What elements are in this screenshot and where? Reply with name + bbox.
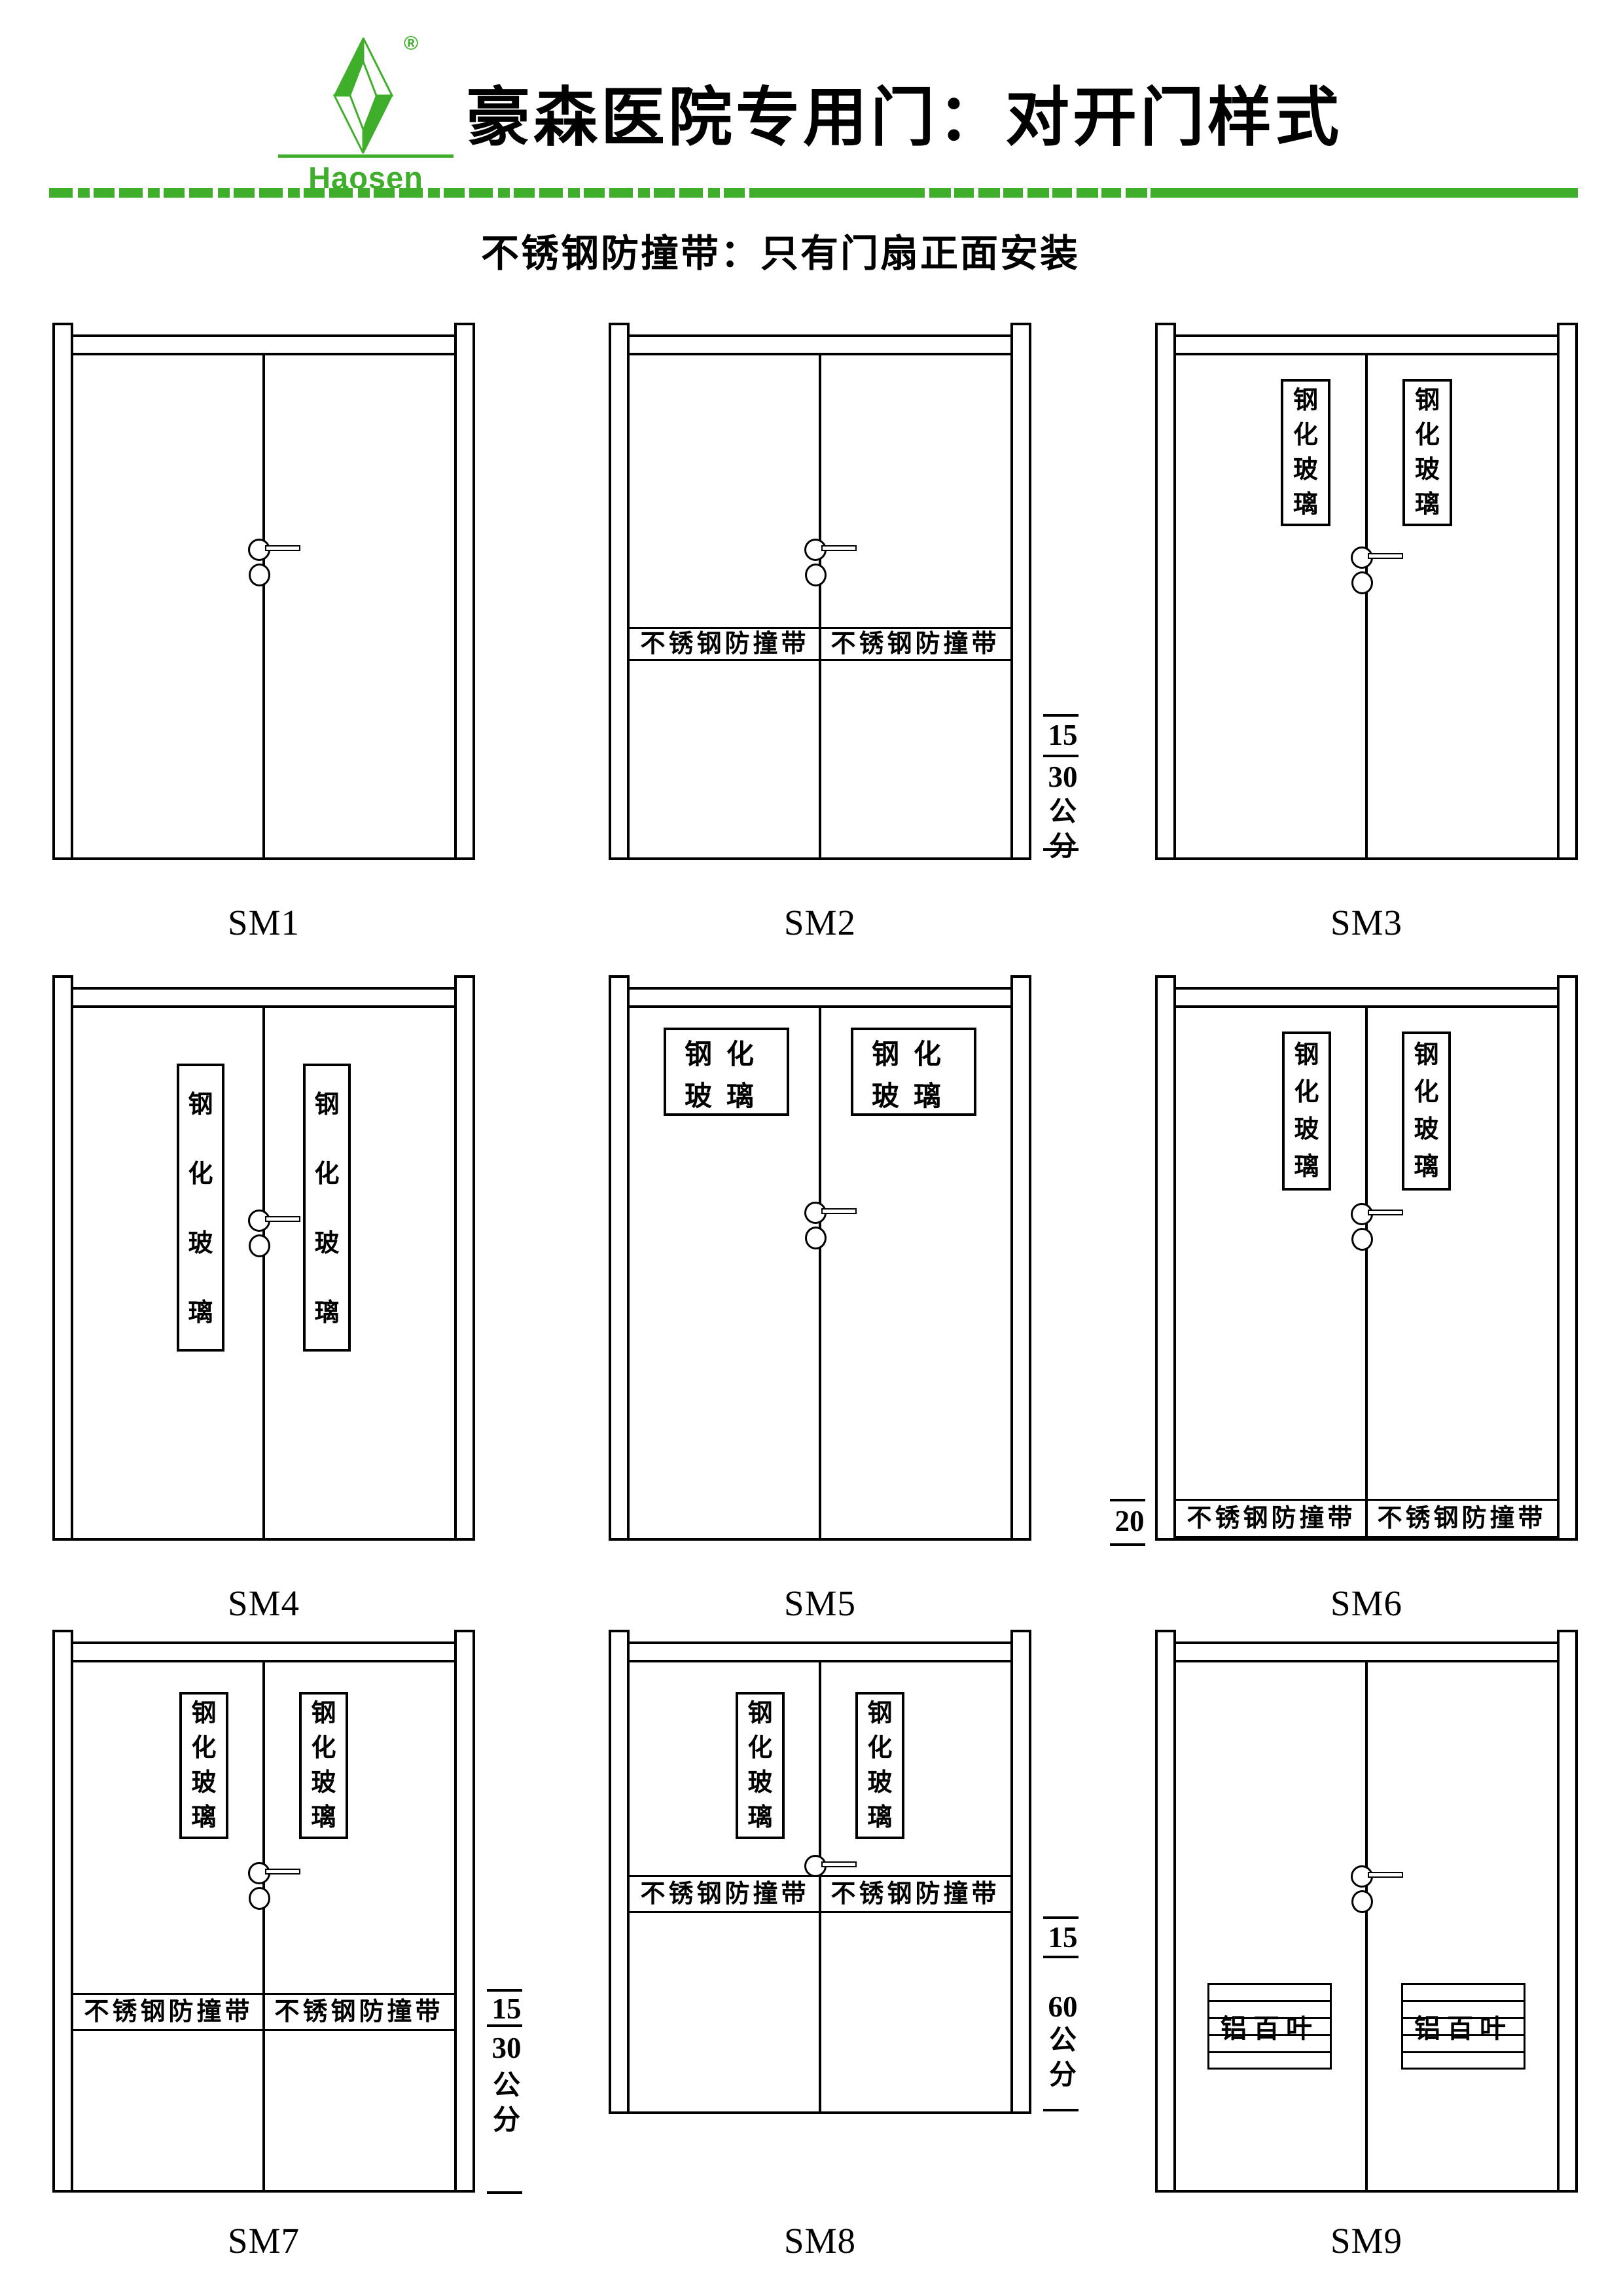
dim-value-strip-height: 20 — [1109, 1504, 1150, 1538]
dim-tick — [1043, 1956, 1079, 1958]
door-frame-lintel — [71, 987, 457, 1005]
glass-panel-left: 钢化玻璃 — [1282, 1031, 1331, 1191]
strip-label-left: 不锈钢防撞带 — [1176, 1506, 1366, 1531]
dim-tick — [1110, 1499, 1145, 1501]
glass-panel-right: 钢化玻璃 — [303, 1064, 351, 1352]
door-meeting-line — [819, 355, 821, 857]
glass-panel-label: 钢化玻璃 — [1292, 382, 1319, 524]
door-frame-post-right — [1010, 323, 1031, 860]
door-diagram-sm1 — [52, 323, 475, 860]
door-label-sm4: SM4 — [52, 1583, 475, 1624]
door-label-sm7: SM7 — [52, 2220, 475, 2261]
door-handle — [804, 539, 859, 584]
haosen-logo-icon — [326, 35, 401, 156]
door-meeting-line — [1365, 1662, 1368, 2190]
dim-value-bottom-gap: 30 — [1042, 760, 1084, 794]
door-meeting-line — [1365, 355, 1368, 857]
handle-cylinder-icon — [805, 1227, 827, 1249]
handle-cylinder-icon — [1351, 1890, 1373, 1913]
door-frame-lintel — [71, 1641, 457, 1660]
dim-unit: 公分 — [491, 2069, 522, 2138]
door-handle — [248, 1862, 303, 1908]
divider-dashes — [905, 188, 1165, 198]
door-frame-post-right — [1010, 1630, 1031, 2114]
door-meeting-line — [819, 1008, 821, 1538]
door-frame-lintel — [1173, 334, 1560, 353]
glass-panel-label: 钢化玻璃 — [865, 1030, 963, 1113]
door-leaf-area: 不锈钢防撞带 不锈钢防撞带 — [627, 353, 1013, 860]
door-label-sm3: SM3 — [1155, 902, 1578, 943]
spec-sheet-page: ® Haosen 豪森医院专用门：对开门样式 不锈钢防撞带：只有门扇正面安装 — [0, 0, 1623, 2296]
door-diagram-sm9: 铝百叶 铝百叶 — [1155, 1630, 1578, 2193]
door-leaf-area: 铝百叶 铝百叶 — [1173, 1660, 1560, 2193]
door-frame-lintel — [1173, 1641, 1560, 1660]
glass-panel-right: 钢化玻璃 — [1402, 379, 1452, 526]
glass-panel-left: 钢化玻璃 — [664, 1028, 789, 1116]
door-frame-post-right — [454, 1630, 475, 2193]
door-leaf-area: 不锈钢防撞带 不锈钢防撞带 钢化玻璃 钢化玻璃 — [627, 1660, 1013, 2114]
door-leaf-area: 钢化玻璃 钢化玻璃 — [627, 1005, 1013, 1541]
glass-panel-label: 钢化玻璃 — [187, 1066, 215, 1349]
logo-underline — [278, 154, 454, 158]
door-frame-post-right — [1557, 975, 1578, 1541]
door-handle — [248, 539, 303, 584]
door-frame-lintel — [627, 987, 1013, 1005]
glass-panel-right: 钢化玻璃 — [299, 1692, 348, 1839]
handle-lever-bar-icon — [1368, 1872, 1403, 1878]
door-leaf-area: 钢化玻璃 钢化玻璃 — [1173, 353, 1560, 860]
glass-panel-left: 钢化玻璃 — [1281, 379, 1330, 526]
door-label-sm1: SM1 — [52, 902, 475, 943]
dim-tick — [1043, 848, 1079, 851]
strip-label-left: 不锈钢防撞带 — [73, 2000, 264, 2024]
glass-panel-right: 钢化玻璃 — [855, 1692, 904, 1839]
door-diagram-sm8: 不锈钢防撞带 不锈钢防撞带 钢化玻璃 钢化玻璃 — [609, 1630, 1031, 2114]
door-frame-post-right — [454, 975, 475, 1541]
door-frame-post-right — [1557, 323, 1578, 860]
door-handle — [1351, 1865, 1406, 1911]
handle-lever-bar-icon — [1368, 1210, 1403, 1215]
strip-label-right: 不锈钢防撞带 — [1366, 1506, 1557, 1531]
door-label-sm9: SM9 — [1155, 2220, 1578, 2261]
louver-panel-label: 铝百叶 — [1209, 1985, 1330, 2068]
louver-panel-right: 铝百叶 — [1401, 1983, 1525, 2070]
door-frame-post-right — [1010, 975, 1031, 1541]
door-label-sm5: SM5 — [609, 1583, 1031, 1624]
page-subtitle: 不锈钢防撞带：只有门扇正面安装 — [481, 223, 1080, 278]
door-leaf-area: 不锈钢防撞带 不锈钢防撞带 钢化玻璃 钢化玻璃 — [71, 1660, 457, 2193]
handle-cylinder-icon — [249, 564, 270, 586]
glass-panel-label: 钢化玻璃 — [1293, 1034, 1321, 1188]
door-meeting-line — [262, 1662, 265, 2190]
dim-tick — [1043, 755, 1079, 757]
registered-trademark-icon: ® — [404, 33, 418, 55]
handle-lever-bar-icon — [265, 1216, 300, 1222]
door-handle — [248, 1210, 303, 1255]
dim-value-bottom-gap: 60 — [1042, 1990, 1084, 2024]
glass-panel-label: 钢化玻璃 — [310, 1695, 338, 1837]
door-frame-lintel — [1173, 987, 1560, 1005]
handle-lever-bar-icon — [821, 1208, 857, 1214]
divider-solid — [1165, 188, 1578, 198]
dim-unit: 公分 — [1047, 795, 1079, 864]
page-title: 豪森医院专用门：对开门样式 — [466, 65, 1342, 158]
dim-tick — [1043, 714, 1079, 717]
handle-lever-bar-icon — [821, 1861, 857, 1867]
door-diagram-sm6: 不锈钢防撞带 不锈钢防撞带 钢化玻璃 钢化玻璃 — [1155, 975, 1578, 1541]
dim-tick — [1043, 1916, 1079, 1919]
door-meeting-line — [262, 1008, 265, 1538]
door-handle — [1351, 1203, 1406, 1249]
door-frame-lintel — [627, 334, 1013, 353]
door-leaf-area: 不锈钢防撞带 不锈钢防撞带 钢化玻璃 钢化玻璃 — [1173, 1005, 1560, 1541]
divider-solid — [753, 188, 906, 198]
dimension-annotation-sm2: 15 30 公分 — [1042, 714, 1084, 853]
door-diagram-sm4: 钢化玻璃 钢化玻璃 — [52, 975, 475, 1541]
handle-lever-bar-icon — [1368, 553, 1403, 559]
door-diagram-sm3: 钢化玻璃 钢化玻璃 — [1155, 323, 1578, 860]
glass-panel-label: 钢化玻璃 — [866, 1695, 894, 1837]
handle-cylinder-icon — [805, 564, 827, 586]
glass-panel-label: 钢化玻璃 — [677, 1030, 776, 1113]
dim-value-strip-height: 15 — [1042, 718, 1084, 752]
strip-label-left: 不锈钢防撞带 — [630, 632, 820, 656]
handle-cylinder-icon — [1351, 1228, 1373, 1251]
glass-panel-label: 钢化玻璃 — [1413, 1034, 1440, 1188]
door-diagram-sm7: 不锈钢防撞带 不锈钢防撞带 钢化玻璃 钢化玻璃 — [52, 1630, 475, 2193]
door-diagram-sm5: 钢化玻璃 钢化玻璃 — [609, 975, 1031, 1541]
glass-panel-right: 钢化玻璃 — [851, 1028, 976, 1116]
dim-tick — [1043, 2109, 1079, 2111]
door-diagram-sm2: 不锈钢防撞带 不锈钢防撞带 — [609, 323, 1031, 860]
strip-label-left: 不锈钢防撞带 — [630, 1882, 820, 1907]
strip-label-right: 不锈钢防撞带 — [820, 632, 1010, 656]
door-label-sm2: SM2 — [609, 902, 1031, 943]
glass-panel-right: 钢化玻璃 — [1402, 1031, 1451, 1191]
handle-cylinder-icon — [1351, 571, 1373, 594]
dim-value-strip-height: 15 — [1042, 1920, 1084, 1954]
handle-lever-bar-icon — [265, 1869, 300, 1874]
dimension-annotation-sm7: 15 30 公分 — [486, 1989, 527, 2194]
handle-cylinder-icon — [249, 1887, 270, 1910]
dimension-annotation-sm6: 20 — [1109, 1499, 1150, 1546]
dim-value-bottom-gap: 30 — [486, 2031, 527, 2065]
door-meeting-line — [262, 355, 265, 857]
divider-dashes — [49, 188, 753, 198]
dim-tick — [487, 2024, 522, 2027]
door-handle — [804, 1855, 859, 1901]
louver-panel-label: 铝百叶 — [1403, 1985, 1524, 2068]
glass-panel-left: 钢化玻璃 — [177, 1064, 224, 1352]
door-label-sm6: SM6 — [1155, 1583, 1578, 1624]
door-frame-post-right — [454, 323, 475, 860]
glass-panel-left: 钢化玻璃 — [179, 1692, 228, 1839]
dim-value-strip-height: 15 — [486, 1992, 527, 2026]
door-leaf-area — [71, 353, 457, 860]
dim-tick — [487, 2191, 522, 2194]
glass-panel-label: 钢化玻璃 — [747, 1695, 774, 1837]
louver-panel-left: 铝百叶 — [1207, 1983, 1332, 2070]
door-frame-post-right — [1557, 1630, 1578, 2193]
strip-label-right: 不锈钢防撞带 — [264, 2000, 454, 2024]
door-handle — [804, 1202, 859, 1247]
door-frame-lintel — [627, 1641, 1013, 1660]
handle-cylinder-icon — [249, 1234, 270, 1257]
glass-panel-label: 钢化玻璃 — [190, 1695, 218, 1837]
dim-tick — [1110, 1543, 1145, 1546]
door-leaf-area: 钢化玻璃 钢化玻璃 — [71, 1005, 457, 1541]
handle-lever-bar-icon — [821, 545, 857, 551]
door-frame-lintel — [71, 334, 457, 353]
glass-panel-left: 钢化玻璃 — [736, 1692, 785, 1839]
green-divider — [49, 188, 1578, 198]
dimension-annotation-sm8: 15 60 公分 — [1042, 1916, 1084, 2111]
handle-lever-bar-icon — [265, 545, 300, 551]
door-label-sm8: SM8 — [609, 2220, 1031, 2261]
dim-unit: 公分 — [1047, 2024, 1079, 2092]
door-handle — [1351, 547, 1406, 592]
glass-panel-label: 钢化玻璃 — [1414, 382, 1441, 524]
glass-panel-label: 钢化玻璃 — [313, 1066, 341, 1349]
door-meeting-line — [1365, 1008, 1368, 1538]
